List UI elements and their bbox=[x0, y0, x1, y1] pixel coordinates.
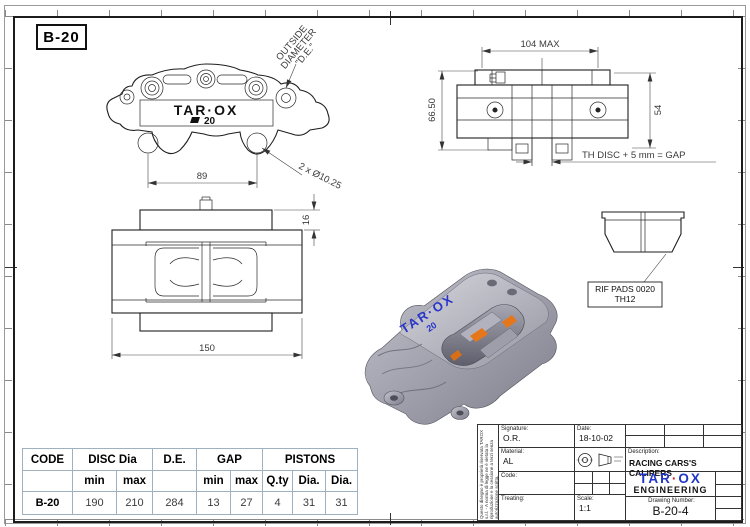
bleed-nipple bbox=[200, 197, 212, 210]
end-view-drawing: 104 MAX 66.50 54 TH DISC + 5 mm = GAP bbox=[420, 30, 720, 190]
date-label: Date: bbox=[575, 425, 625, 433]
col-header-pistons: PISTONS bbox=[263, 449, 358, 471]
code-label: Code: bbox=[499, 472, 574, 480]
dim-16: 16 bbox=[301, 215, 312, 226]
cell-disc-max: 210 bbox=[117, 492, 153, 515]
subheader-disc-min: min bbox=[73, 471, 117, 492]
subheader-dia2: Dia. bbox=[326, 471, 358, 492]
cell-qty: 4 bbox=[263, 492, 293, 515]
col-header-gap: GAP bbox=[197, 449, 263, 471]
scale-label: Scale: bbox=[575, 495, 625, 503]
dim-89: 89 bbox=[197, 171, 208, 182]
col-header-code: CODE bbox=[23, 449, 73, 471]
drawing-number-value: B-20-4 bbox=[626, 505, 715, 517]
render-hole-1 bbox=[487, 280, 497, 287]
dim-150: 150 bbox=[199, 343, 215, 354]
side-cells-2 bbox=[716, 497, 741, 520]
pad-outline bbox=[602, 212, 684, 252]
spec-table: CODE DISC Dia D.E. GAP PISTONS min max m… bbox=[22, 448, 358, 515]
cell-dia1: 31 bbox=[293, 492, 326, 515]
material-label: Material: bbox=[499, 448, 574, 456]
revision-cells-top bbox=[626, 425, 741, 436]
cell-dia2: 31 bbox=[326, 492, 358, 515]
date-value: 18-10-02 bbox=[575, 433, 625, 443]
pad-ref-line2: TH12 bbox=[615, 294, 636, 304]
cell-disc-min: 190 bbox=[73, 492, 117, 515]
side-cells-1 bbox=[716, 472, 741, 497]
revision-cells-bottom bbox=[626, 436, 741, 448]
subheader-gap-min: min bbox=[197, 471, 231, 492]
scale-value: 1:1 bbox=[575, 503, 625, 513]
bottom-top-tab bbox=[140, 210, 272, 230]
cell-gap-min: 13 bbox=[197, 492, 231, 515]
drawing-sheet: B-20 TAR·OX 20 89 bbox=[0, 0, 750, 527]
cell-gap-max: 27 bbox=[231, 492, 263, 515]
cell-de: 284 bbox=[153, 492, 197, 515]
zone-label: B-20 bbox=[43, 29, 80, 46]
outside-diameter-callout: OUTSIDE DIAMETER "D.E." bbox=[272, 21, 326, 77]
dim-66-50: 66.50 bbox=[427, 98, 438, 122]
subheader-disc-max: max bbox=[117, 471, 153, 492]
table-row: B-20 190 210 284 13 27 4 31 31 bbox=[23, 492, 358, 515]
bottom-view-drawing: 150 16 bbox=[58, 188, 358, 378]
subheader-dia1: Dia. bbox=[293, 471, 326, 492]
brand-logo: TAR·OX bbox=[626, 472, 715, 486]
signature-label: Signature: bbox=[499, 425, 574, 433]
pad-detail-drawing: RIF PADS 0020 TH12 bbox=[578, 188, 748, 313]
col-header-de: D.E. bbox=[153, 449, 197, 471]
ownership-note: Questo disegno è proprietà riservata TAR… bbox=[478, 425, 500, 520]
front-model-number: 20 bbox=[204, 116, 216, 127]
treating-label: Treating: bbox=[499, 495, 574, 503]
col-header-disc-dia: DISC Dia bbox=[73, 449, 153, 471]
mount-hole-left bbox=[138, 133, 158, 153]
end-main-body bbox=[457, 85, 628, 138]
minigrid bbox=[575, 472, 626, 495]
caliper-3d-render: TAR·OX 20 bbox=[342, 238, 572, 428]
end-top-plate bbox=[475, 70, 610, 85]
subheader-blank-2 bbox=[153, 471, 197, 492]
pad-ref-line1: RIF PADS 0020 bbox=[595, 284, 655, 294]
dim-104-max: 104 MAX bbox=[520, 39, 560, 50]
material-value: AL bbox=[499, 456, 574, 466]
render-hole-2 bbox=[507, 289, 517, 296]
gap-note: TH DISC + 5 mm = GAP bbox=[582, 150, 685, 161]
front-view-drawing: TAR·OX 20 89 OUTSIDE DIAMETER "D.E." 2 x… bbox=[88, 18, 388, 203]
subheader-blank-1 bbox=[23, 471, 73, 492]
description-label: Description: bbox=[626, 448, 741, 456]
subheader-gap-max: max bbox=[231, 471, 263, 492]
bottom-main-body bbox=[112, 230, 302, 313]
cell-code: B-20 bbox=[23, 492, 73, 515]
bottom-bottom-tab bbox=[140, 313, 272, 331]
projection-symbol bbox=[575, 448, 626, 472]
signature-value: O.R. bbox=[499, 433, 574, 443]
dim-54: 54 bbox=[653, 105, 664, 116]
brand-sub: ENGINEERING bbox=[626, 486, 715, 495]
subheader-qty: Q.ty bbox=[263, 471, 293, 492]
title-block: Questo disegno è proprietà riservata TAR… bbox=[477, 424, 742, 521]
zone-label-box: B-20 bbox=[36, 24, 87, 50]
